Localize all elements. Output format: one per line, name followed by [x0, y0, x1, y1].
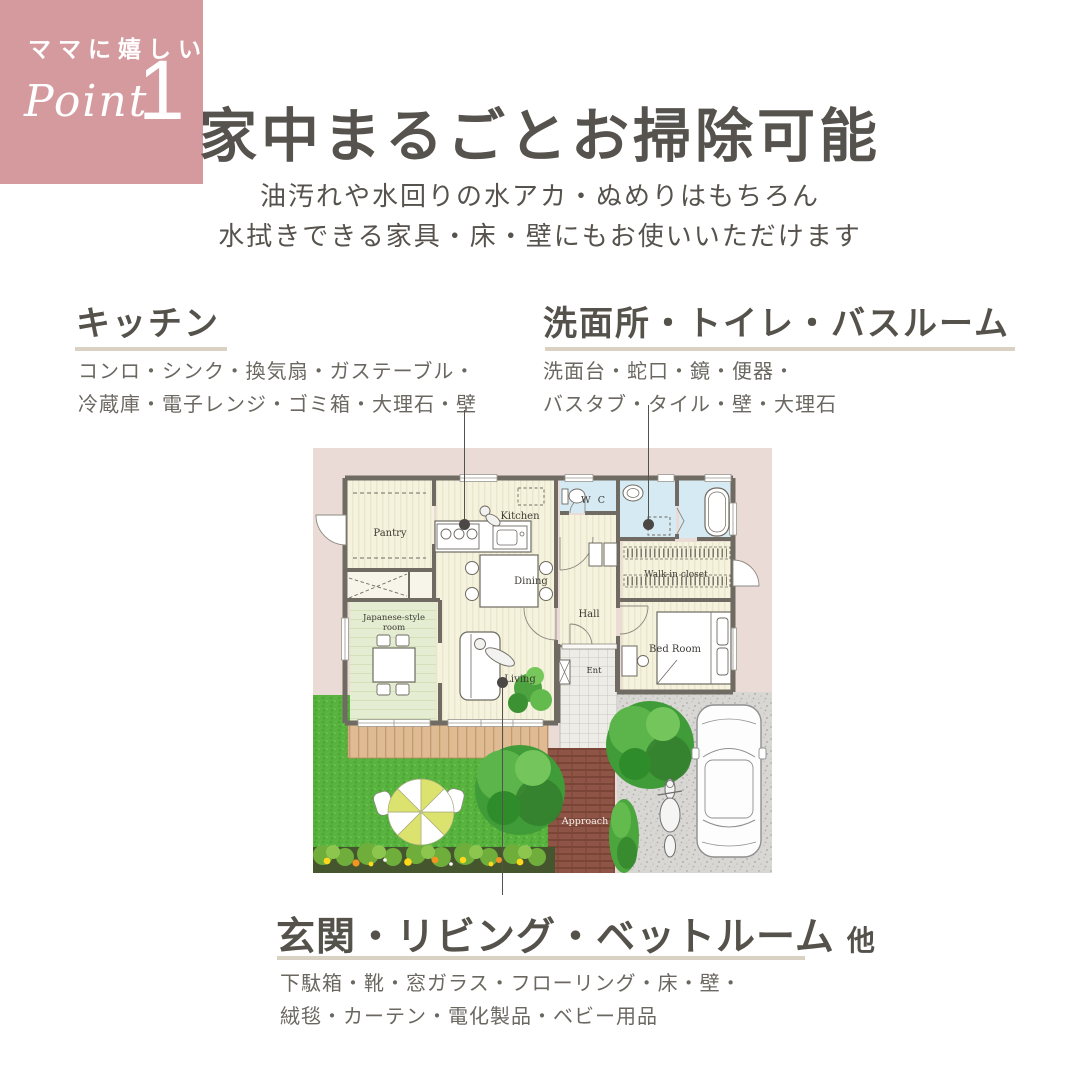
sanitary-items-line-1: 洗面台・蛇口・鏡・便器・	[543, 356, 837, 389]
room-label-japanese-line2: room	[383, 623, 405, 633]
floor-plan-illustration: Pantry Kitchen W C Dining Hall Walk-in c…	[313, 448, 772, 873]
room-label-living: Living	[504, 674, 536, 685]
leader-line-sanitary	[648, 405, 649, 525]
living-heading-suffix: 他	[847, 925, 875, 956]
room-label-dining: Dining	[514, 576, 548, 587]
living-items-line-1: 下駄箱・靴・窓ガラス・フローリング・床・壁・	[280, 968, 742, 1001]
sanitary-items-line-2: バスタブ・タイル・壁・大理石	[543, 389, 837, 422]
room-label-kitchen: Kitchen	[500, 511, 540, 522]
leader-dot-living	[497, 677, 508, 688]
room-label-pantry: Pantry	[373, 528, 406, 539]
living-heading-text: 玄関・リビング・ベットルーム	[276, 916, 835, 959]
room-label-bedroom: Bed Room	[649, 644, 701, 655]
room-label-hall: Hall	[578, 609, 599, 620]
kitchen-items-line-2: 冷蔵庫・電子レンジ・ゴミ箱・大理石・壁	[78, 389, 477, 422]
subtitle-line-2: 水拭きできる家具・床・壁にもお使いいただけます	[0, 216, 1080, 256]
sanitary-section-heading: 洗面所・トイレ・バスルーム	[543, 296, 1010, 345]
kitchen-items-line-1: コンロ・シンク・換気扇・ガステーブル・	[78, 356, 477, 389]
room-label-approach: Approach	[561, 816, 608, 827]
leader-line-kitchen	[464, 410, 465, 524]
car	[692, 705, 766, 857]
room-label-japanese-line1: Japanese-style	[362, 613, 425, 623]
living-section-heading: 玄関・リビング・ベットルーム他	[276, 906, 875, 962]
page-subtitle: 油汚れや水回りの水アカ・ぬめりはもちろん 水拭きできる家具・床・壁にもお使いいた…	[0, 176, 1080, 256]
promo-page: ママに嬉しい Point 1 家中まるごとお掃除可能 油汚れや水回りの水アカ・ぬ…	[0, 0, 1080, 1080]
flower-bed	[313, 843, 555, 873]
room-label-walkin-closet: Walk-in closet	[644, 570, 708, 580]
garden-tree-right	[606, 701, 694, 789]
sanitary-heading-underline	[545, 347, 1015, 351]
living-heading-underline	[277, 956, 805, 960]
leader-dot-sanitary	[643, 519, 654, 530]
leader-dot-kitchen	[459, 519, 470, 530]
subtitle-line-1: 油汚れや水回りの水アカ・ぬめりはもちろん	[0, 176, 1080, 216]
kitchen-heading-underline	[75, 347, 227, 351]
kitchen-section-heading: キッチン	[76, 296, 220, 345]
sanitary-section-items: 洗面台・蛇口・鏡・便器・ バスタブ・タイル・壁・大理石	[543, 356, 837, 422]
kitchen-section-items: コンロ・シンク・換気扇・ガステーブル・ 冷蔵庫・電子レンジ・ゴミ箱・大理石・壁	[78, 356, 477, 422]
garden-bush-small	[609, 799, 639, 873]
living-section-items: 下駄箱・靴・窓ガラス・フローリング・床・壁・ 絨毯・カーテン・電化製品・ベビー用…	[280, 968, 742, 1034]
living-items-line-2: 絨毯・カーテン・電化製品・ベビー用品	[280, 1001, 742, 1034]
room-label-wc: W C	[581, 495, 607, 506]
page-title: 家中まるごとお掃除可能	[0, 89, 1080, 173]
garden-tree-center	[475, 745, 565, 835]
leader-line-living	[502, 682, 503, 895]
room-label-entrance: Ent	[586, 666, 602, 676]
